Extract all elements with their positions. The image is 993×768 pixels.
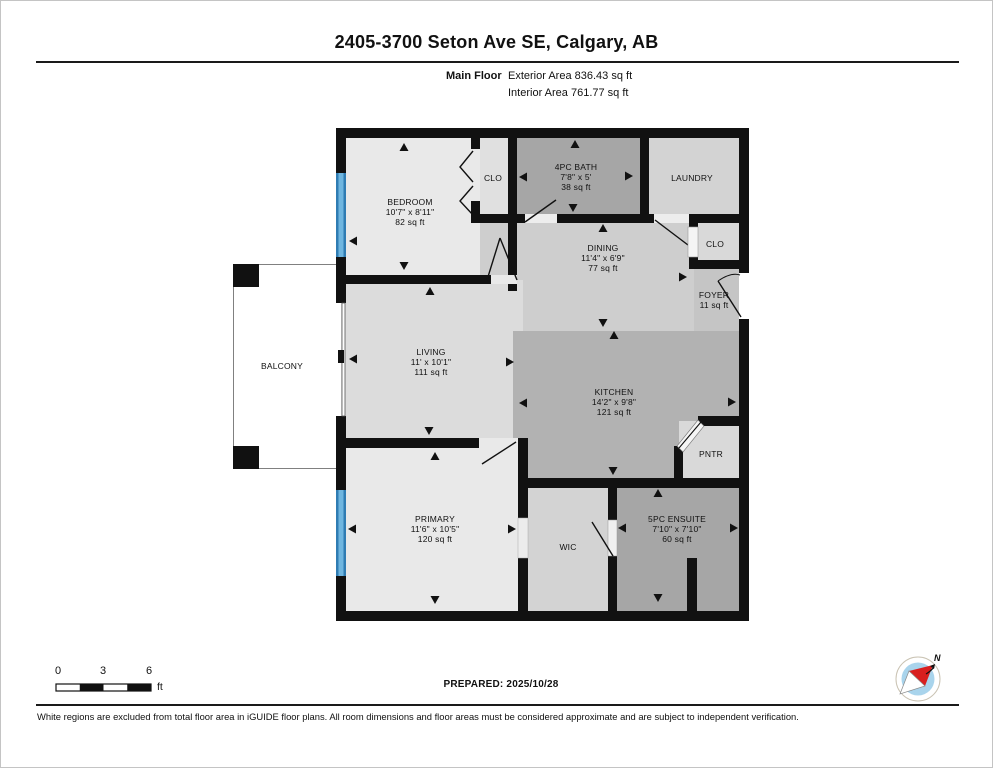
room-label-bath: 4PC BATH7'8" x 5'38 sq ft <box>555 162 598 192</box>
room-name: FOYER <box>699 290 729 300</box>
room-dims: 11'4" x 6'9" <box>581 253 625 263</box>
room-name: CLO <box>484 173 502 183</box>
room-dims: 7'10" x 7'10" <box>648 524 706 534</box>
header-divider <box>36 61 959 63</box>
primary-window-icon <box>336 490 346 576</box>
scale-bar <box>56 684 151 691</box>
scale-tick-3: 3 <box>100 665 106 677</box>
room-label-closet-foyer: CLO <box>706 239 724 249</box>
room-name: CLO <box>706 239 724 249</box>
room-name: BEDROOM <box>386 197 435 207</box>
floor-label: Main Floor <box>446 70 502 82</box>
room-area: 38 sq ft <box>555 182 598 192</box>
room-label-primary: PRIMARY11'6" x 10'5"120 sq ft <box>411 514 460 544</box>
interior-area-text: Interior Area 761.77 sq ft <box>508 87 628 99</box>
room-area: 121 sq ft <box>592 407 636 417</box>
north-label: N <box>934 653 941 663</box>
scale-unit-label: ft <box>157 681 163 693</box>
room-name: 4PC BATH <box>555 162 598 172</box>
scale-tick-6: 6 <box>146 665 152 677</box>
room-name: BALCONY <box>261 361 303 371</box>
room-name: WIC <box>559 542 576 552</box>
room-label-pantry: PNTR <box>699 449 723 459</box>
compass-icon <box>896 657 940 701</box>
prepared-date: PREPARED: 2025/10/28 <box>371 679 631 690</box>
room-label-living: LIVING11' x 10'1"111 sq ft <box>411 347 451 377</box>
room-label-dining: DINING11'4" x 6'9"77 sq ft <box>581 243 625 273</box>
room-area: 60 sq ft <box>648 534 706 544</box>
room-name: DINING <box>581 243 625 253</box>
page-title: 2405-3700 Seton Ave SE, Calgary, AB <box>1 32 992 53</box>
footer-divider <box>36 704 959 706</box>
room-area: 11 sq ft <box>699 300 729 310</box>
room-area: 111 sq ft <box>411 367 451 377</box>
disclaimer-text: White regions are excluded from total fl… <box>37 711 967 722</box>
room-label-wic: WIC <box>559 542 576 552</box>
room-area: 77 sq ft <box>581 263 625 273</box>
room-label-kitchen: KITCHEN14'2" x 9'8"121 sq ft <box>592 387 636 417</box>
room-name: LIVING <box>411 347 451 357</box>
room-area: 120 sq ft <box>411 534 460 544</box>
room-dims: 10'7" x 8'11" <box>386 207 435 217</box>
room-name: KITCHEN <box>592 387 636 397</box>
floorplan-svg <box>1 1 992 767</box>
room-label-laundry: LAUNDRY <box>671 173 713 183</box>
scale-tick-0: 0 <box>55 665 61 677</box>
room-name: PNTR <box>699 449 723 459</box>
room-label-closet-bedroom: CLO <box>484 173 502 183</box>
bedroom-window-icon <box>336 173 346 257</box>
room-name: LAUNDRY <box>671 173 713 183</box>
room-name: 5PC ENSUITE <box>648 514 706 524</box>
room-label-bedroom: BEDROOM10'7" x 8'11"82 sq ft <box>386 197 435 227</box>
room-area: 82 sq ft <box>386 217 435 227</box>
exterior-area-text: Exterior Area 836.43 sq ft <box>508 70 632 82</box>
room-dims: 11'6" x 10'5" <box>411 524 460 534</box>
room-label-balcony: BALCONY <box>261 361 303 371</box>
room-label-ensuite: 5PC ENSUITE7'10" x 7'10"60 sq ft <box>648 514 706 544</box>
room-dims: 7'8" x 5' <box>555 172 598 182</box>
room-dims: 11' x 10'1" <box>411 357 451 367</box>
room-label-foyer: FOYER11 sq ft <box>699 290 729 310</box>
floorplan-page: 2405-3700 Seton Ave SE, Calgary, AB Main… <box>0 0 993 768</box>
room-name: PRIMARY <box>411 514 460 524</box>
room-dims: 14'2" x 9'8" <box>592 397 636 407</box>
